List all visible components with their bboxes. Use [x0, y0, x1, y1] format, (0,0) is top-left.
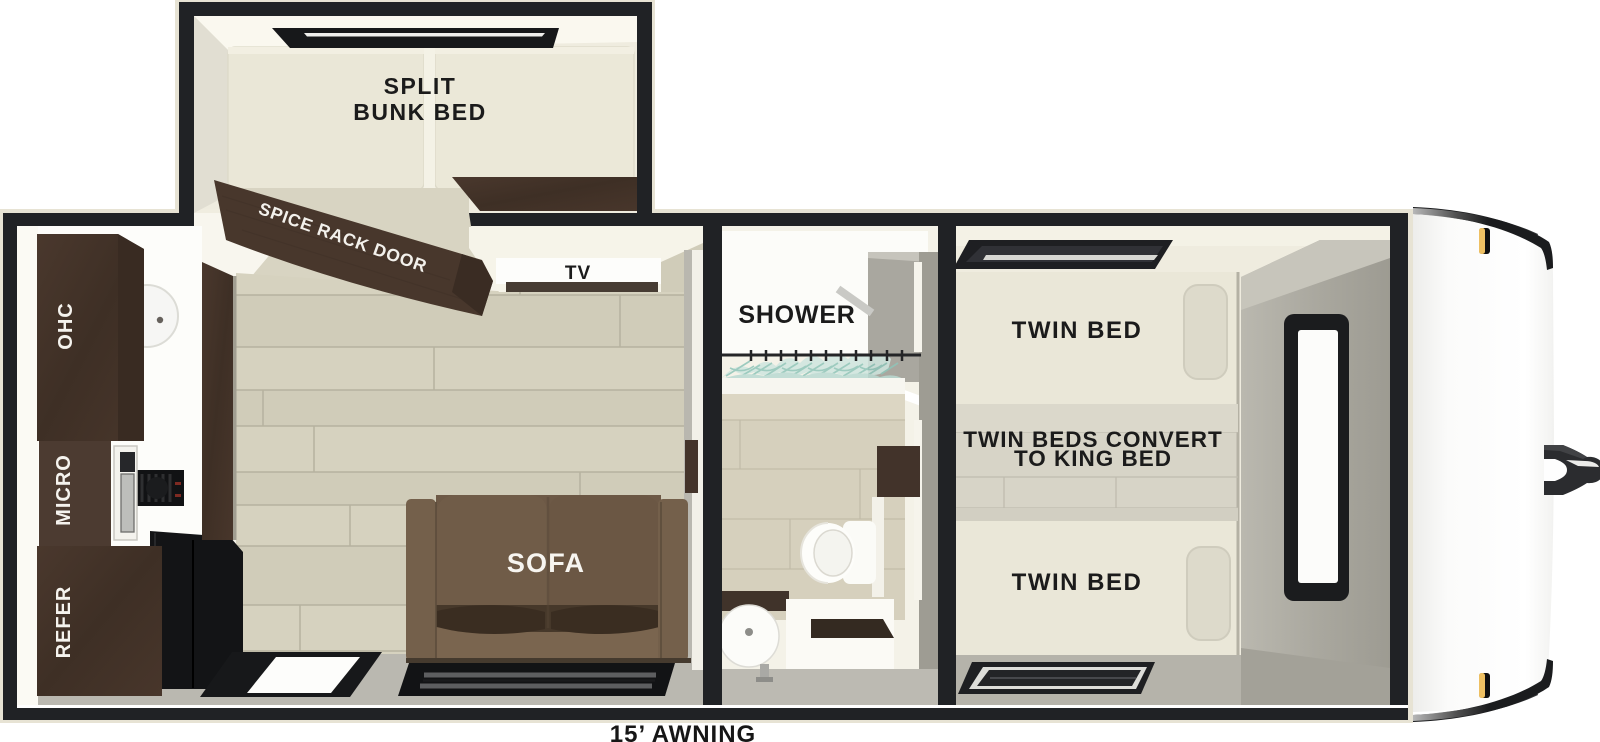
svg-text:TO KING BED: TO KING BED [1014, 446, 1172, 471]
svg-text:SPLIT: SPLIT [384, 73, 457, 99]
svg-text:TV: TV [565, 263, 591, 284]
svg-text:OHC: OHC [55, 302, 77, 349]
svg-text:TWIN BED: TWIN BED [1012, 317, 1143, 344]
svg-text:SHOWER: SHOWER [738, 301, 855, 329]
svg-text:BUNK BED: BUNK BED [353, 99, 486, 125]
svg-text:REFER: REFER [53, 586, 75, 659]
svg-text:TWIN BED: TWIN BED [1012, 569, 1143, 596]
svg-text:MICRO: MICRO [53, 454, 75, 526]
svg-text:SOFA: SOFA [507, 548, 585, 578]
svg-text:15’ AWNING: 15’ AWNING [610, 721, 756, 742]
